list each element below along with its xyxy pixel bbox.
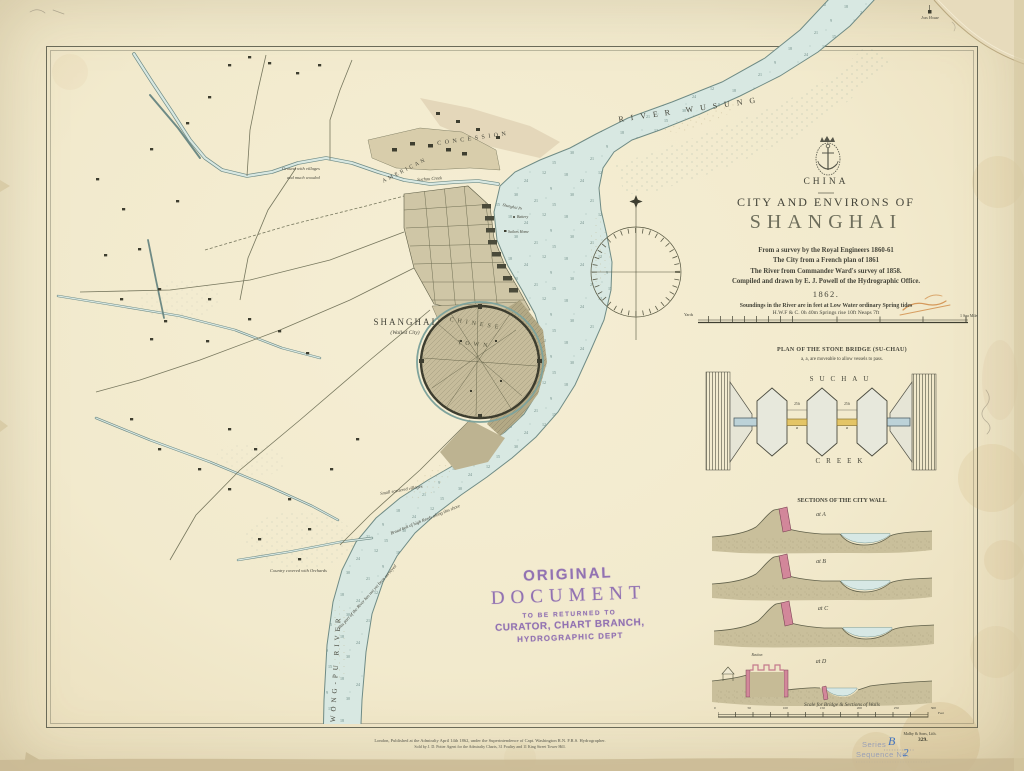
- bridge-title: PLAN OF THE STONE BRIDGE (SU-CHAU): [722, 347, 962, 353]
- label-orchards-note: Country covered with Orchards: [270, 569, 327, 574]
- wall-label-d: at D: [806, 659, 836, 665]
- tick: 100: [783, 707, 788, 711]
- imprint-line-2: Sold by J. D. Potter Agent for the Admir…: [340, 745, 640, 749]
- scale-label-yards: Yards: [684, 313, 693, 317]
- scale-label-mile: 1 Sea Mile: [960, 314, 977, 318]
- torn-corner: [934, 0, 1024, 64]
- wall-section-d: [712, 665, 932, 706]
- label-battery: Battery: [517, 215, 528, 219]
- battery-icon: [513, 216, 515, 218]
- series-label: Series: [862, 741, 886, 749]
- bridge-plan-drawing: [706, 372, 936, 470]
- map-engraving: 182412 30219 15: [0, 0, 1024, 771]
- page-title: SHANGHAI: [726, 212, 926, 233]
- tick: 300: [931, 707, 936, 711]
- bridge-span-a1: a: [793, 426, 801, 431]
- title-subtitle: CITY AND ENVIRONS OF: [726, 196, 926, 209]
- wall-sections-title: SECTIONS OF THE CITY WALL: [742, 498, 942, 504]
- bridge-water-bottom: CREEK: [772, 458, 912, 465]
- label-sailors-home: Sailors Home: [508, 230, 529, 234]
- admiralty-seal-icon: [816, 136, 840, 175]
- source-line: Compiled and drawn by E. J. Powell of th…: [706, 277, 946, 287]
- bridge-span-dim-1: 25ft: [789, 403, 805, 407]
- source-line: The River from Commander Ward's survey o…: [706, 267, 946, 277]
- bastion-label: Bastion: [742, 654, 772, 658]
- label-shanghai-city: SHANGHAI: [362, 318, 448, 327]
- label-ground-note-2: and much wooded: [287, 176, 320, 181]
- lithographer: Malby & Sons, Lith.: [895, 732, 945, 736]
- bridge-note: a, a, are moveable to allow vessels to p…: [742, 357, 942, 362]
- sequence-value: 2: [903, 748, 909, 760]
- tick: 200: [857, 707, 862, 711]
- wall-label-a: at A: [806, 512, 836, 518]
- label-ground-note-1: Ground with villages: [282, 167, 320, 172]
- scale-bar-main: [698, 316, 968, 323]
- curator-stamp: ORIGINAL DOCUMENT TO BE RETURNED TO CURA…: [477, 563, 662, 646]
- source-line: From a survey by the Royal Engineers 186…: [706, 246, 946, 256]
- north-star-icon: [629, 195, 642, 208]
- source-line: The City from a French plan of 1861: [706, 256, 946, 266]
- wall-scale-ticks: 0 50 100 150 200 250 300: [714, 707, 936, 711]
- imprint-line-1: London, Published at the Admiralty April…: [290, 739, 690, 744]
- title-country: CHINA: [756, 178, 896, 188]
- series-value: B: [888, 735, 895, 748]
- title-source-lines: From a survey by the Royal Engineers 186…: [706, 246, 946, 287]
- tick: 0: [714, 707, 716, 711]
- wall-label-c: at C: [808, 606, 838, 612]
- soundings-note: Soundings in the River are in feet at Lo…: [696, 303, 956, 309]
- joss-house-icon: [928, 10, 932, 14]
- stamp-line: DOCUMENT: [477, 582, 660, 611]
- scale-bar-feet: [718, 712, 929, 718]
- wall-label-b: at B: [806, 559, 836, 565]
- tick: 250: [894, 707, 899, 711]
- tick: 50: [748, 707, 752, 711]
- label-walled-city: (Walled City): [368, 331, 442, 337]
- chart-sheet: 182412 30219 15: [0, 0, 1024, 771]
- bridge-water-top: SUCHAU: [762, 376, 922, 383]
- wall-scale-unit: Feet: [938, 712, 944, 716]
- title-year: 1862.: [726, 290, 926, 299]
- tide-note: H.W.F & C. 0h 40m Springs rise 10ft Neap…: [696, 311, 956, 317]
- chart-number: 329.: [918, 738, 928, 744]
- bridge-span-dim-2: 25ft: [839, 403, 855, 407]
- label-joss-house: Joss House: [908, 16, 952, 20]
- bridge-span-a2: a: [843, 426, 851, 431]
- tick: 150: [820, 707, 825, 711]
- sequence-label: Sequence No.: [856, 751, 910, 759]
- sailors-home-icon: [504, 230, 507, 232]
